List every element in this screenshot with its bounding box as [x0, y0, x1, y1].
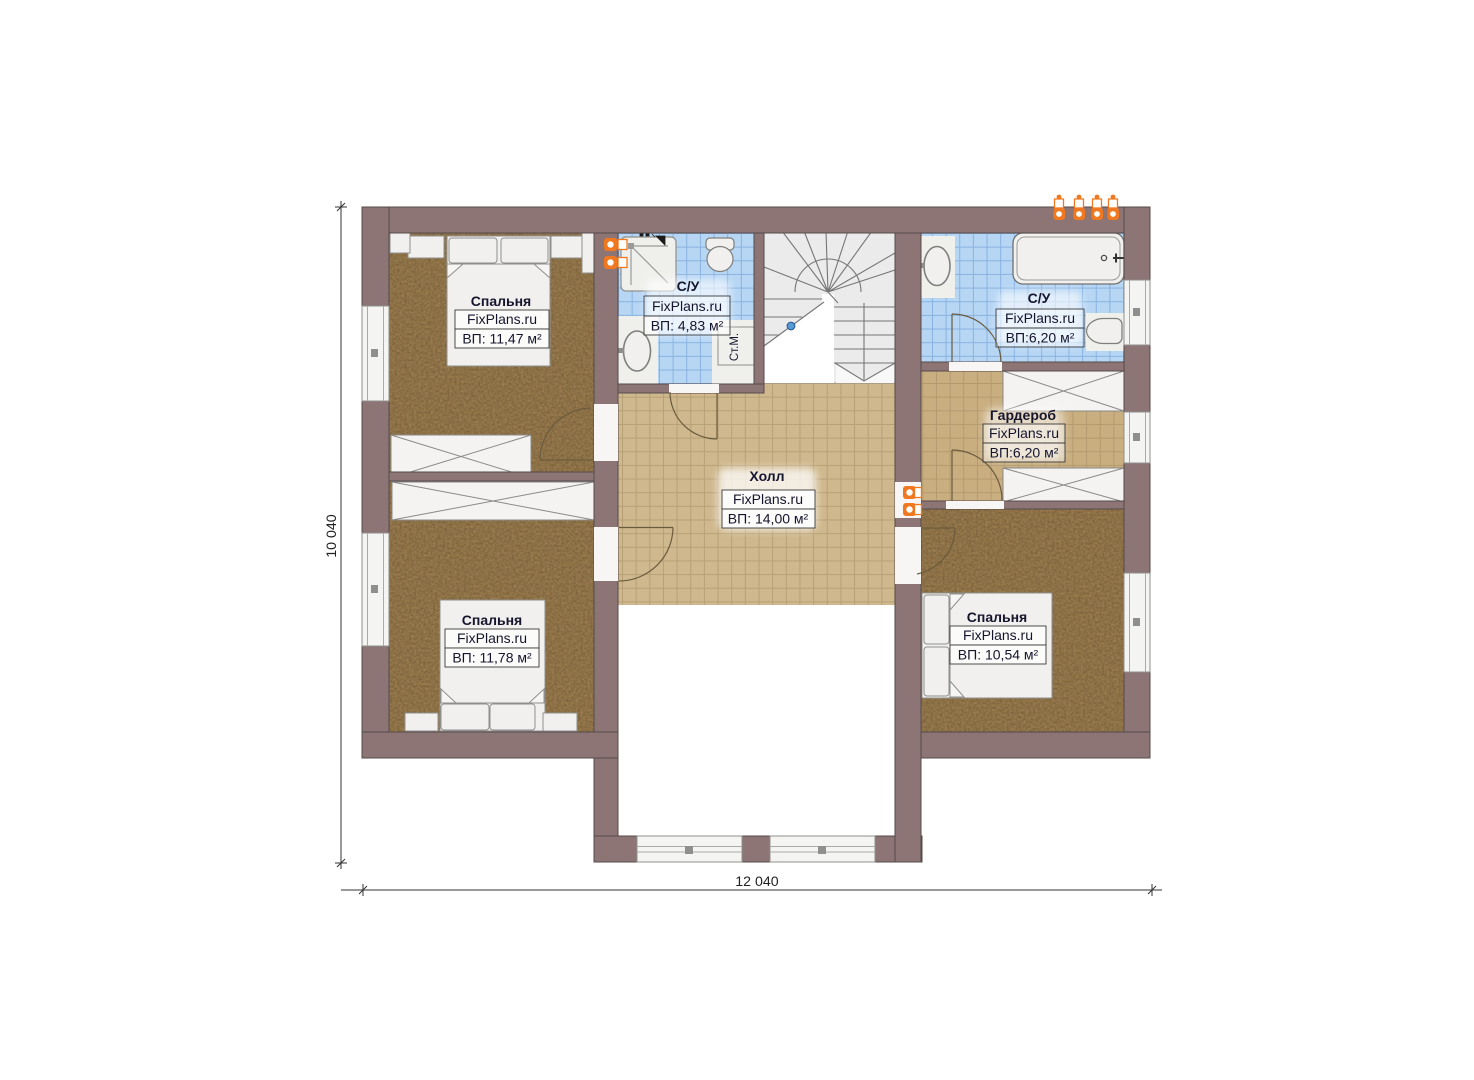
svg-text:Холл: Холл — [749, 468, 784, 484]
svg-text:ВП: 10,54 м²: ВП: 10,54 м² — [958, 647, 1039, 663]
svg-text:FixPlans.ru: FixPlans.ru — [963, 627, 1033, 643]
svg-text:FixPlans.ru: FixPlans.ru — [989, 425, 1059, 441]
svg-text:ВП: 4,83 м²: ВП: 4,83 м² — [651, 318, 724, 334]
svg-text:ВП: 11,78 м²: ВП: 11,78 м² — [452, 650, 532, 666]
svg-text:FixPlans.ru: FixPlans.ru — [1005, 310, 1075, 326]
svg-text:12 040: 12 040 — [735, 874, 779, 890]
svg-text:FixPlans.ru: FixPlans.ru — [457, 630, 527, 646]
svg-text:Ст.М.: Ст.М. — [729, 333, 741, 361]
svg-text:ВП: 11,47 м²: ВП: 11,47 м² — [462, 331, 542, 347]
svg-text:ВП: 14,00 м²: ВП: 14,00 м² — [728, 511, 809, 527]
svg-text:Спальня: Спальня — [471, 293, 531, 309]
svg-text:FixPlans.ru: FixPlans.ru — [733, 491, 803, 507]
svg-text:ВП:6,20 м²: ВП:6,20 м² — [990, 445, 1059, 461]
svg-text:FixPlans.ru: FixPlans.ru — [467, 311, 537, 327]
svg-text:FixPlans.ru: FixPlans.ru — [652, 298, 722, 314]
svg-text:С/У: С/У — [677, 278, 700, 294]
svg-text:С/У: С/У — [1028, 290, 1051, 306]
svg-text:Спальня: Спальня — [462, 612, 522, 628]
svg-text:Гардероб: Гардероб — [990, 407, 1057, 423]
svg-text:ВП:6,20 м²: ВП:6,20 м² — [1006, 330, 1075, 346]
svg-text:Спальня: Спальня — [967, 609, 1027, 625]
svg-text:10 040: 10 040 — [324, 514, 340, 558]
